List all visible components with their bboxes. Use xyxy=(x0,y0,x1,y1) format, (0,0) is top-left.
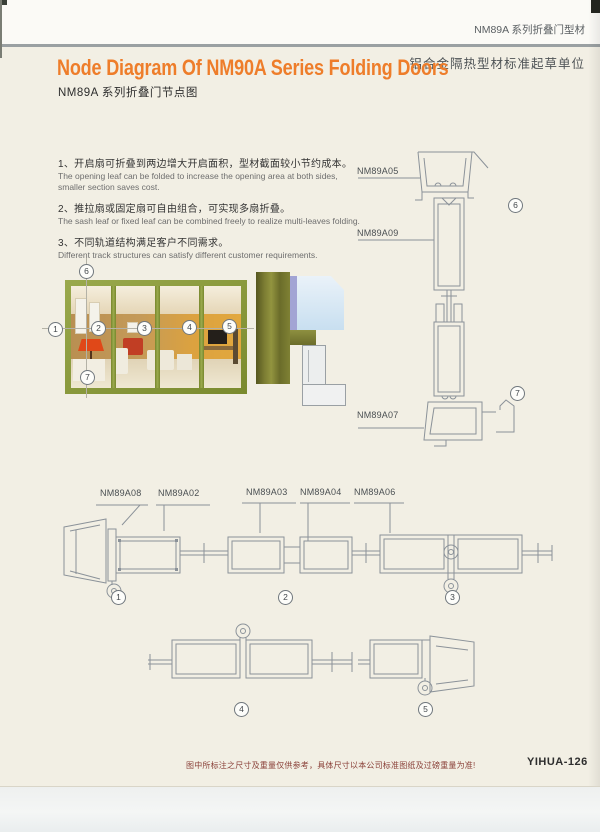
vertical-section-drawing xyxy=(350,140,535,470)
header-series-label: NM89A 系列折叠门型材 xyxy=(474,22,585,37)
note-en: Different track structures can satisfy d… xyxy=(58,250,360,261)
label-nm89a07: NM89A07 xyxy=(357,410,398,420)
label-nm89a08: NM89A08 xyxy=(100,488,141,498)
photo-cream-sofa xyxy=(147,350,174,370)
callout-3: 3 xyxy=(137,321,152,336)
scan-edge-left xyxy=(0,0,2,58)
label-nm89a04: NM89A04 xyxy=(300,487,341,497)
photo-speaker xyxy=(233,328,238,364)
render-aluminium-detail xyxy=(308,350,309,382)
photo-door-mullion xyxy=(111,286,116,388)
feature-notes: 1、开启扇可折叠到两边增大开启面积，型材截面较小节约成本。 The openin… xyxy=(58,155,360,268)
page-bottom-edge xyxy=(0,786,600,832)
callout-7: 7 xyxy=(510,386,525,401)
callout-2: 2 xyxy=(278,590,293,605)
corner-profile-render xyxy=(256,268,348,410)
photo-door-mullion xyxy=(155,286,160,388)
note-zh: 3、不同轨道结构满足客户不同需求。 xyxy=(58,234,360,249)
label-nm89a09: NM89A09 xyxy=(357,228,398,238)
render-frame-vertical xyxy=(256,272,290,384)
label-nm89a06: NM89A06 xyxy=(354,487,395,497)
note-item: 3、不同轨道结构满足客户不同需求。 Different track struct… xyxy=(58,234,360,261)
callout-3: 3 xyxy=(445,590,460,605)
photo-tv-stand xyxy=(202,346,233,350)
page-right-shadow xyxy=(588,0,600,786)
photo-ottoman xyxy=(177,354,192,370)
footer-page-code: YIHUA-126 xyxy=(527,756,588,768)
callout-5: 5 xyxy=(222,319,237,334)
note-item: 2、推拉扇或固定扇可自由组合，可实现多扇折叠。 The sash leaf or… xyxy=(58,200,360,227)
callout-5: 5 xyxy=(418,702,433,717)
render-glass xyxy=(297,276,344,330)
note-en: The sash leaf or fixed leaf can be combi… xyxy=(58,216,360,227)
footer-disclaimer: 图中所标注之尺寸及重量仅供参考，具体尺寸以本公司标准图纸及过磅重量为准! xyxy=(186,760,475,771)
note-en: The opening leaf can be folded to increa… xyxy=(58,171,360,193)
callout-1: 1 xyxy=(48,322,63,337)
photo-lamp xyxy=(78,339,104,351)
callout-6: 6 xyxy=(508,198,523,213)
render-aluminium-foot xyxy=(302,384,346,406)
page-title: Node Diagram Of NM90A Series Folding Doo… xyxy=(57,56,449,82)
note-zh: 2、推拉扇或固定扇可自由组合，可实现多扇折叠。 xyxy=(58,200,360,215)
callout-6: 6 xyxy=(79,264,94,279)
note-item: 1、开启扇可折叠到两边增大开启面积，型材截面较小节约成本。 The openin… xyxy=(58,155,360,193)
callout-2: 2 xyxy=(91,321,106,336)
callout-4: 4 xyxy=(234,702,249,717)
photo-interior-scene xyxy=(71,286,241,388)
callout-1: 1 xyxy=(111,590,126,605)
page-subtitle: NM89A 系列折叠门节点图 xyxy=(58,84,198,100)
photo-lamp-stem xyxy=(90,351,92,359)
header-divider xyxy=(0,44,600,47)
label-nm89a02: NM89A02 xyxy=(158,488,199,498)
label-nm89a05: NM89A05 xyxy=(357,166,398,176)
render-gasket xyxy=(290,276,297,330)
render-frame-horizontal xyxy=(290,330,316,345)
scan-corner-mark-right xyxy=(591,0,600,13)
note-zh: 1、开启扇可折叠到两边增大开启面积，型材截面较小节约成本。 xyxy=(58,155,360,170)
render-aluminium-profile xyxy=(302,345,326,389)
callout-7: 7 xyxy=(80,370,95,385)
horizontal-sections-row1 xyxy=(52,497,564,601)
callout-4: 4 xyxy=(182,320,197,335)
label-nm89a03: NM89A03 xyxy=(246,487,287,497)
horizontal-sections-row2 xyxy=(140,622,485,706)
catalog-page: NM89A 系列折叠门型材 铝合金隔热型材标准起草单位 Node Diagram… xyxy=(0,0,600,832)
photo-door-mullion xyxy=(199,286,204,388)
